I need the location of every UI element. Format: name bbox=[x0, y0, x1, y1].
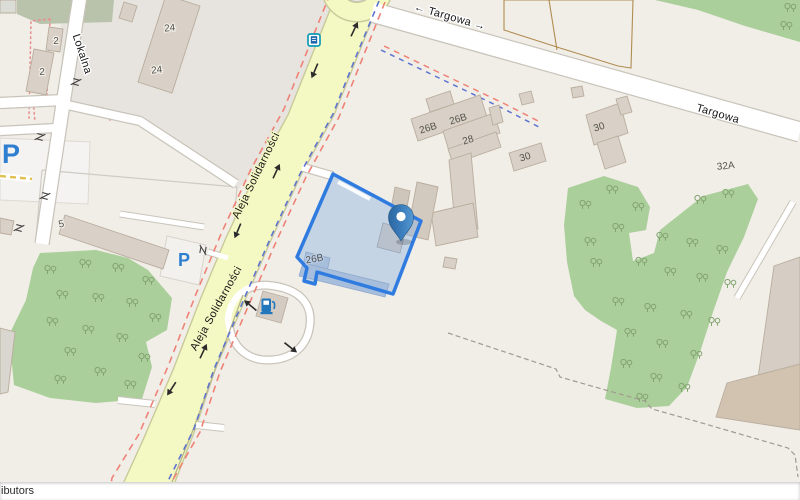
bus-stop-icon bbox=[308, 34, 320, 46]
addr-24b: 24 bbox=[151, 64, 164, 76]
attribution-bar: ibutors bbox=[0, 482, 800, 500]
map-canvas[interactable]: P P ← Targowa → Targowa Aleja Solidarnoś… bbox=[0, 0, 800, 482]
track-dashed bbox=[0, 176, 32, 179]
addr-2b: 2 bbox=[39, 67, 45, 78]
parking-icon-left: P bbox=[2, 139, 20, 169]
attribution-text[interactable]: ibutors bbox=[1, 485, 34, 497]
addr-24a: 24 bbox=[164, 22, 177, 34]
parking-icon-small: P bbox=[178, 250, 190, 270]
addr-2a: 2 bbox=[53, 36, 59, 47]
addr-32a: 32A bbox=[716, 160, 735, 173]
map-viewport: P P ← Targowa → Targowa Aleja Solidarnoś… bbox=[0, 0, 800, 500]
